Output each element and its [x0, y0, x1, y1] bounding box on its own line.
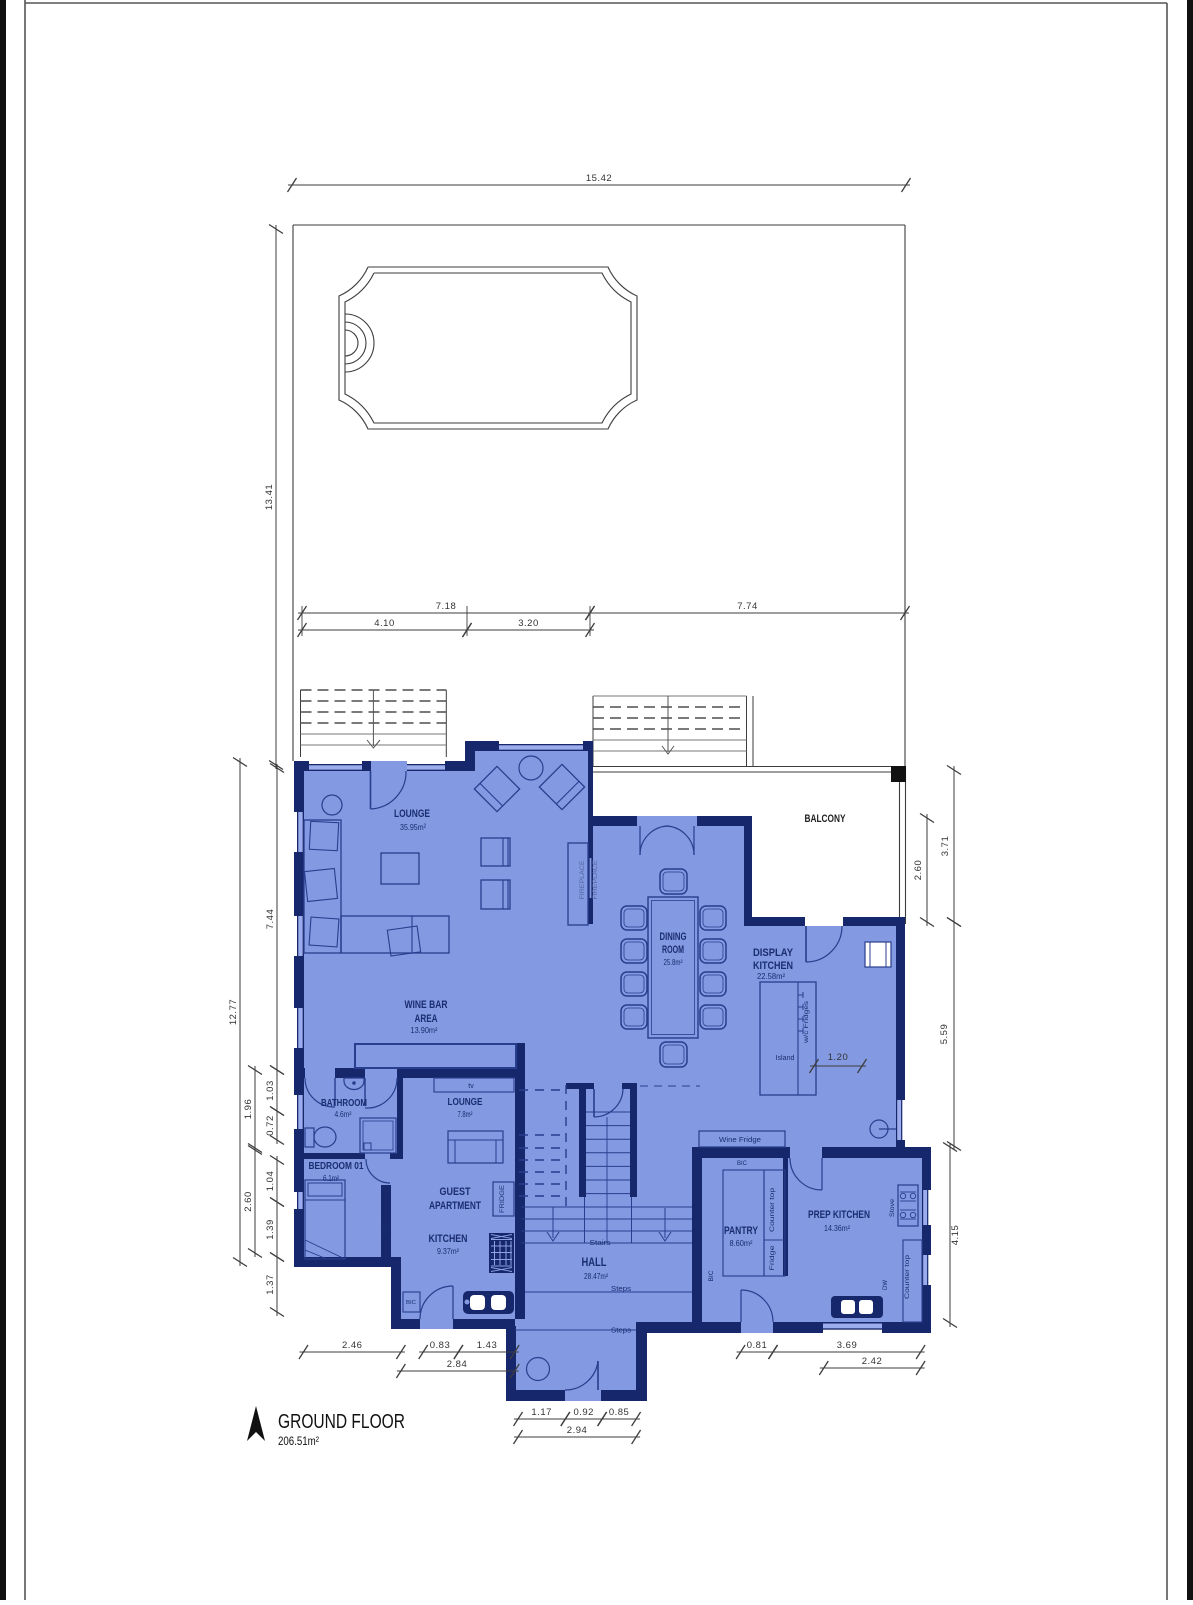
- svg-text:28.47m²: 28.47m²: [584, 1272, 608, 1281]
- svg-text:1.03: 1.03: [265, 1080, 276, 1101]
- svg-text:FIREPLACE: FIREPLACE: [580, 861, 586, 900]
- svg-text:Counter top: Counter top: [769, 1188, 776, 1232]
- svg-text:Steps: Steps: [611, 1284, 631, 1293]
- svg-text:KITCHEN: KITCHEN: [753, 960, 793, 972]
- svg-text:GUEST: GUEST: [440, 1186, 471, 1198]
- svg-text:7.18: 7.18: [436, 601, 457, 612]
- svg-text:BEDROOM 01: BEDROOM 01: [309, 1160, 364, 1172]
- svg-text:Counter top: Counter top: [904, 1255, 911, 1299]
- svg-text:KITCHEN: KITCHEN: [429, 1233, 468, 1245]
- svg-text:3.20: 3.20: [518, 618, 539, 629]
- svg-text:w/c Fridges: w/c Fridges: [803, 1000, 810, 1044]
- svg-text:BALCONY: BALCONY: [805, 813, 846, 825]
- svg-text:7.74: 7.74: [737, 601, 758, 612]
- svg-text:ROOM: ROOM: [662, 944, 684, 956]
- svg-text:0.81: 0.81: [747, 1340, 768, 1351]
- svg-text:Fridge: Fridge: [769, 1245, 776, 1271]
- svg-text:1.39: 1.39: [265, 1219, 276, 1240]
- svg-text:2.46: 2.46: [342, 1340, 363, 1351]
- svg-text:BIC: BIC: [383, 1221, 389, 1236]
- svg-text:4.6m²: 4.6m²: [335, 1110, 352, 1119]
- svg-text:LOUNGE: LOUNGE: [448, 1096, 483, 1108]
- svg-text:25.8m²: 25.8m²: [664, 958, 683, 967]
- svg-text:2.94: 2.94: [567, 1425, 588, 1436]
- svg-text:BIC: BIC: [406, 1300, 416, 1306]
- svg-text:5.59: 5.59: [939, 1024, 950, 1045]
- svg-text:15.42: 15.42: [586, 173, 612, 184]
- svg-text:1.43: 1.43: [477, 1340, 498, 1351]
- svg-text:2.60: 2.60: [243, 1191, 254, 1212]
- svg-text:Stove: Stove: [889, 1199, 896, 1217]
- svg-text:0.83: 0.83: [430, 1340, 451, 1351]
- svg-text:2.60: 2.60: [913, 860, 924, 881]
- svg-text:Stairs: Stairs: [590, 1238, 611, 1247]
- svg-text:22.58m²: 22.58m²: [757, 972, 785, 981]
- svg-text:7.8m²: 7.8m²: [458, 1110, 473, 1119]
- svg-text:Wine Fridge: Wine Fridge: [719, 1135, 761, 1144]
- svg-text:DINING: DINING: [660, 931, 687, 943]
- svg-text:4.10: 4.10: [374, 618, 395, 629]
- svg-text:GROUND FLOOR: GROUND FLOOR: [278, 1410, 405, 1433]
- svg-text:3.69: 3.69: [837, 1340, 858, 1351]
- svg-text:206.51m²: 206.51m²: [278, 1434, 319, 1448]
- svg-text:1.04: 1.04: [265, 1171, 276, 1192]
- svg-text:1.37: 1.37: [265, 1274, 276, 1295]
- svg-text:1.17: 1.17: [531, 1407, 552, 1418]
- svg-text:8.60m²: 8.60m²: [730, 1239, 753, 1248]
- svg-text:BIC: BIC: [709, 1270, 715, 1282]
- svg-text:APARTMENT: APARTMENT: [429, 1200, 481, 1212]
- svg-text:tv: tv: [468, 1083, 474, 1090]
- svg-text:3.71: 3.71: [940, 836, 951, 857]
- svg-text:7.44: 7.44: [265, 909, 276, 930]
- svg-text:DISPLAY: DISPLAY: [753, 947, 794, 959]
- svg-text:LOUNGE: LOUNGE: [394, 808, 430, 820]
- svg-text:12.77: 12.77: [228, 999, 239, 1025]
- svg-text:BIC: BIC: [737, 1160, 747, 1167]
- svg-text:WINE BAR: WINE BAR: [405, 999, 448, 1011]
- svg-text:Steps: Steps: [611, 1326, 631, 1335]
- svg-text:1.20: 1.20: [828, 1052, 849, 1063]
- svg-text:0.72: 0.72: [265, 1115, 276, 1136]
- svg-text:HALL: HALL: [582, 1257, 607, 1269]
- svg-text:13.90m²: 13.90m²: [411, 1026, 438, 1035]
- svg-text:14.36m²: 14.36m²: [824, 1224, 850, 1233]
- svg-text:13.41: 13.41: [264, 484, 275, 510]
- svg-text:0.92: 0.92: [573, 1407, 594, 1418]
- svg-text:0.85: 0.85: [609, 1407, 630, 1418]
- svg-text:2.42: 2.42: [862, 1356, 883, 1367]
- svg-text:AREA: AREA: [415, 1013, 438, 1025]
- svg-text:6.1m²: 6.1m²: [323, 1174, 339, 1183]
- svg-text:Island: Island: [776, 1053, 795, 1062]
- svg-text:4.15: 4.15: [950, 1225, 961, 1246]
- svg-text:FRIDGE: FRIDGE: [500, 1185, 506, 1213]
- svg-text:35.95m²: 35.95m²: [400, 822, 426, 832]
- svg-text:PANTRY: PANTRY: [724, 1225, 759, 1237]
- svg-text:BATHROOM: BATHROOM: [321, 1097, 367, 1109]
- svg-text:1.96: 1.96: [243, 1099, 254, 1120]
- svg-text:9.37m²: 9.37m²: [437, 1247, 459, 1256]
- svg-text:PREP KITCHEN: PREP KITCHEN: [808, 1209, 870, 1221]
- svg-text:DW: DW: [882, 1279, 889, 1290]
- svg-text:2.84: 2.84: [447, 1359, 468, 1370]
- svg-text:FIREPLACE: FIREPLACE: [593, 861, 599, 900]
